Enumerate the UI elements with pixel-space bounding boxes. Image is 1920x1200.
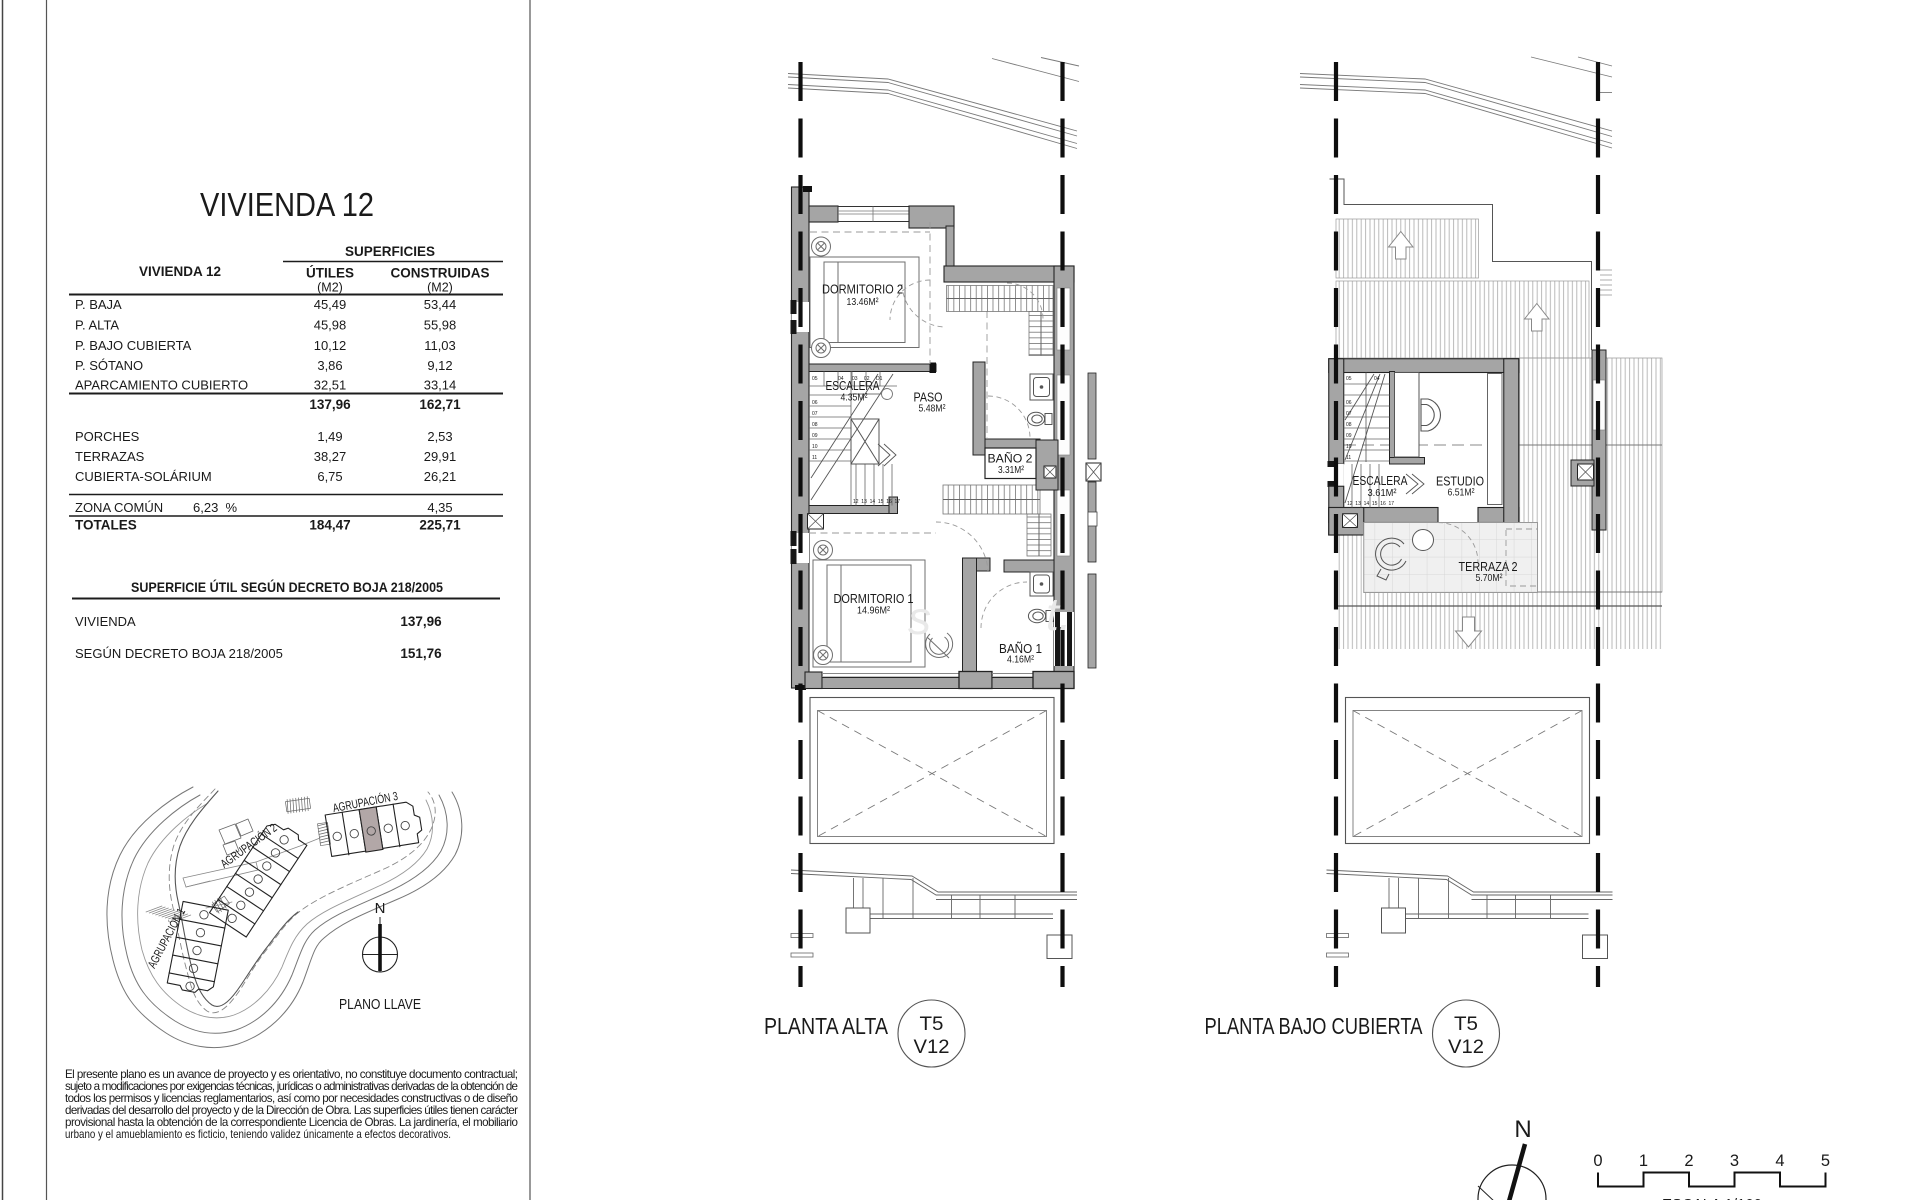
svg-text:11: 11 [812, 455, 817, 461]
svg-text:5: 5 [1821, 1152, 1830, 1170]
svg-text:08: 08 [1346, 422, 1352, 428]
svg-text:14: 14 [870, 499, 876, 505]
svg-text:3.61M²: 3.61M² [1368, 487, 1397, 499]
svg-text:53,44: 53,44 [424, 297, 457, 312]
svg-text:15: 15 [1372, 501, 1378, 507]
svg-text:TERRAZAS: TERRAZAS [75, 449, 145, 464]
svg-text:N: N [1514, 1116, 1531, 1143]
svg-text:ESCALA 1/100: ESCALA 1/100 [1662, 1196, 1762, 1200]
svg-text:PLANO LLAVE: PLANO LLAVE [339, 997, 421, 1013]
svg-text:(M2): (M2) [427, 281, 453, 295]
svg-text:14: 14 [1364, 501, 1370, 507]
svg-text:V12: V12 [1448, 1037, 1484, 1058]
svg-text:6.51M²: 6.51M² [1448, 487, 1475, 499]
svg-text:1,49: 1,49 [317, 429, 342, 444]
svg-text:P. BAJO CUBIERTA: P. BAJO CUBIERTA [75, 338, 192, 353]
svg-text:VIVIENDA 12: VIVIENDA 12 [200, 186, 374, 223]
svg-text:29,91: 29,91 [424, 449, 457, 464]
svg-text:14.96M²: 14.96M² [857, 605, 890, 617]
svg-text:09: 09 [812, 433, 818, 439]
svg-text:4: 4 [1775, 1152, 1784, 1170]
svg-text:137,96: 137,96 [309, 397, 351, 412]
svg-text:BAÑO 2: BAÑO 2 [988, 453, 1033, 466]
svg-text:33,14: 33,14 [424, 378, 457, 393]
svg-text:11,03: 11,03 [424, 338, 456, 353]
svg-text:urbano y el amueblamiento es f: urbano y el amueblamiento es ficticio, t… [65, 1128, 451, 1141]
svg-text:17: 17 [895, 499, 901, 505]
svg-text:11: 11 [1346, 455, 1351, 461]
svg-text:PLANTA ALTA: PLANTA ALTA [764, 1013, 888, 1039]
svg-text:SUPERFICIES: SUPERFICIES [345, 244, 435, 259]
svg-text:10,12: 10,12 [314, 338, 347, 353]
svg-text:CUBIERTA-SOLÁRIUM: CUBIERTA-SOLÁRIUM [75, 469, 212, 484]
svg-text:TOTALES: TOTALES [75, 518, 137, 533]
svg-text:0: 0 [1593, 1152, 1602, 1170]
svg-text:6,75: 6,75 [317, 469, 342, 484]
svg-text:4.16M²: 4.16M² [1007, 654, 1034, 666]
svg-text:05: 05 [1346, 376, 1352, 382]
svg-text:32,51: 32,51 [314, 378, 347, 393]
svg-text:VIVIENDA 12: VIVIENDA 12 [139, 264, 221, 279]
svg-text:225,71: 225,71 [419, 518, 461, 533]
svg-text:V12: V12 [914, 1037, 950, 1058]
svg-text:3.31M²: 3.31M² [998, 465, 1025, 476]
svg-text:SUPERFICIE ÚTIL SEGÚN DECRETO: SUPERFICIE ÚTIL SEGÚN DECRETO BOJA 218/2… [131, 580, 443, 595]
svg-text:06: 06 [812, 400, 818, 406]
svg-text:PORCHES: PORCHES [75, 429, 140, 444]
svg-text:45,49: 45,49 [314, 297, 347, 312]
svg-text:07: 07 [1346, 411, 1352, 417]
svg-text:55,98: 55,98 [424, 318, 457, 333]
svg-text:T5: T5 [920, 1014, 944, 1035]
svg-text:6,23 %: 6,23 % [193, 500, 238, 515]
svg-text:09: 09 [1346, 433, 1352, 439]
svg-text:5.48M²: 5.48M² [919, 403, 946, 415]
svg-text:15: 15 [878, 499, 884, 505]
svg-text:3: 3 [1730, 1152, 1739, 1170]
svg-text:P. BAJA: P. BAJA [75, 297, 122, 312]
svg-text:10: 10 [1346, 444, 1352, 450]
svg-text:17: 17 [1389, 501, 1395, 507]
svg-text:3,86: 3,86 [317, 358, 342, 373]
svg-text:08: 08 [812, 422, 818, 428]
svg-text:13: 13 [1355, 501, 1361, 507]
svg-text:45,98: 45,98 [314, 318, 347, 333]
svg-text:12: 12 [853, 499, 859, 505]
svg-text:137,96: 137,96 [400, 614, 442, 629]
svg-text:10: 10 [812, 444, 818, 450]
svg-text:16: 16 [1380, 501, 1386, 507]
svg-text:9,12: 9,12 [427, 358, 452, 373]
svg-text:5.70M²: 5.70M² [1476, 572, 1503, 584]
svg-text:06: 06 [1346, 400, 1352, 406]
svg-text:N: N [375, 900, 386, 917]
svg-text:2,53: 2,53 [427, 429, 452, 444]
svg-text:4.35M²: 4.35M² [841, 392, 868, 404]
svg-text:CONSTRUIDAS: CONSTRUIDAS [390, 266, 489, 281]
svg-text:151,76: 151,76 [400, 646, 442, 661]
svg-text:APARCAMIENTO CUBIERTO: APARCAMIENTO CUBIERTO [75, 378, 248, 393]
svg-text:07: 07 [812, 411, 818, 417]
svg-text:1: 1 [1639, 1152, 1648, 1170]
svg-text:13.46M²: 13.46M² [847, 296, 879, 308]
svg-text:SEGÚN DECRETO BOJA 218/2005: SEGÚN DECRETO BOJA 218/2005 [75, 646, 283, 661]
svg-text:VIVIENDA: VIVIENDA [75, 614, 136, 629]
svg-text:162,71: 162,71 [419, 397, 461, 412]
svg-text:05: 05 [812, 376, 818, 382]
svg-text:4,35: 4,35 [427, 500, 452, 515]
svg-text:184,47: 184,47 [309, 518, 350, 533]
svg-text:ESCALERA: ESCALERA [1353, 474, 1409, 488]
svg-text:P. SÓTANO: P. SÓTANO [75, 358, 143, 373]
svg-text:16: 16 [886, 499, 892, 505]
svg-text:38,27: 38,27 [314, 449, 347, 464]
svg-text:ÚTILES: ÚTILES [306, 266, 354, 281]
svg-text:ZONA COMÚN: ZONA COMÚN [75, 500, 163, 515]
svg-text:P. ALTA: P. ALTA [75, 318, 119, 333]
svg-text:13: 13 [861, 499, 867, 505]
svg-text:2: 2 [1684, 1152, 1693, 1170]
svg-text:PLANTA BAJO CUBIERTA: PLANTA BAJO CUBIERTA [1205, 1013, 1423, 1039]
svg-text:t.: t. [1046, 588, 1072, 640]
svg-text:s: s [908, 592, 931, 644]
svg-text:26,21: 26,21 [424, 469, 457, 484]
svg-text:(M2): (M2) [317, 281, 343, 295]
svg-text:T5: T5 [1454, 1014, 1478, 1035]
svg-text:DORMITORIO 2: DORMITORIO 2 [822, 283, 903, 297]
svg-text:04: 04 [1374, 376, 1380, 382]
svg-text:12: 12 [1347, 501, 1353, 507]
